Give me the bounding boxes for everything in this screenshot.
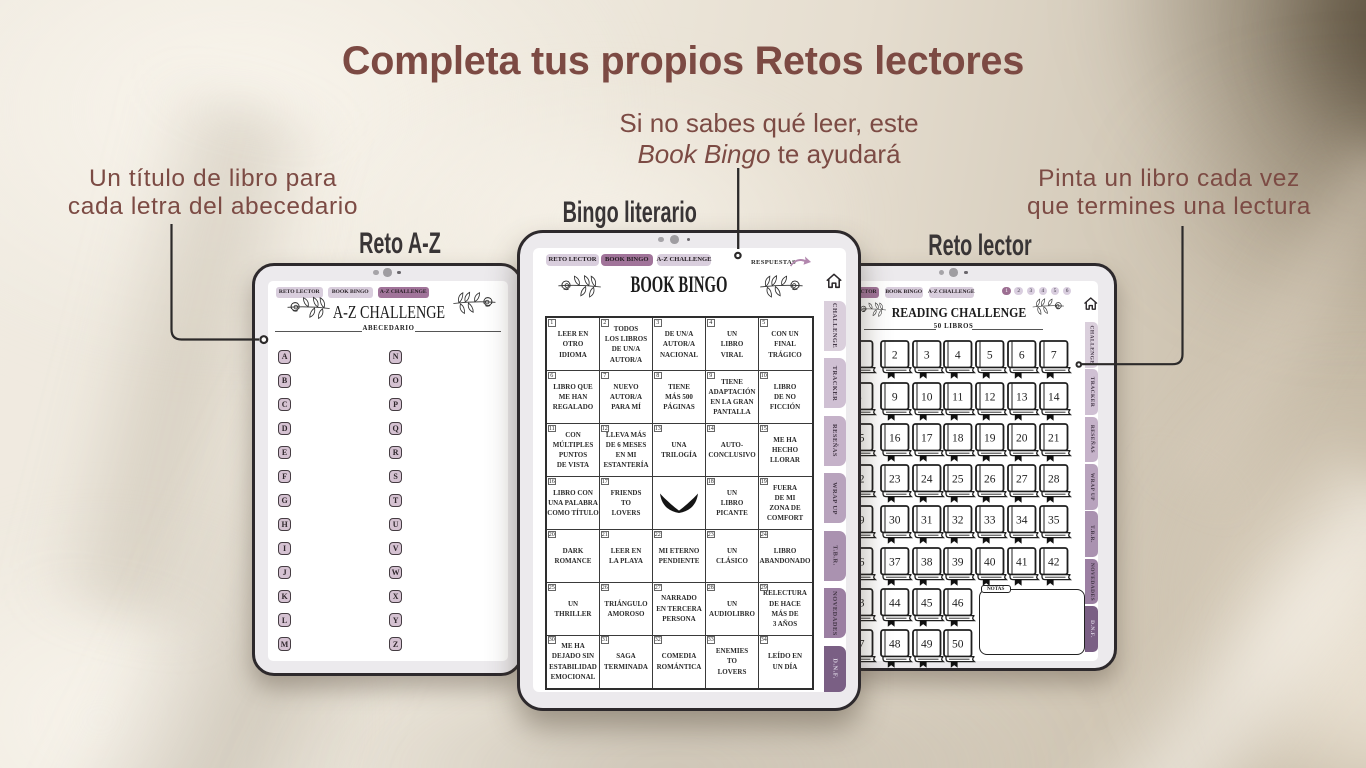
svg-text:33: 33 [984, 515, 996, 527]
svg-text:38: 38 [920, 556, 932, 568]
svg-text:20: 20 [1016, 432, 1028, 444]
svg-text:4: 4 [955, 350, 961, 362]
svg-text:44: 44 [889, 598, 901, 610]
svg-text:42: 42 [1048, 556, 1060, 568]
svg-text:5: 5 [987, 350, 993, 362]
svg-text:17: 17 [920, 432, 932, 444]
svg-text:9: 9 [891, 391, 897, 403]
svg-text:18: 18 [952, 432, 964, 444]
svg-text:10: 10 [920, 391, 932, 403]
svg-text:7: 7 [1051, 350, 1057, 362]
svg-text:28: 28 [1048, 474, 1060, 486]
svg-text:6: 6 [1019, 350, 1025, 362]
svg-text:21: 21 [1048, 432, 1060, 444]
svg-text:50: 50 [952, 639, 964, 651]
svg-text:19: 19 [984, 432, 996, 444]
svg-text:26: 26 [984, 474, 996, 486]
svg-text:30: 30 [889, 515, 901, 527]
svg-text:48: 48 [889, 639, 901, 651]
svg-text:34: 34 [1016, 515, 1028, 527]
svg-text:49: 49 [920, 639, 932, 651]
svg-text:32: 32 [952, 515, 964, 527]
svg-text:39: 39 [952, 556, 964, 568]
svg-text:12: 12 [984, 391, 996, 403]
svg-text:13: 13 [1016, 391, 1028, 403]
svg-text:25: 25 [952, 474, 964, 486]
svg-text:41: 41 [1016, 556, 1028, 568]
svg-text:37: 37 [889, 556, 901, 568]
svg-text:24: 24 [920, 474, 932, 486]
svg-text:31: 31 [920, 515, 932, 527]
svg-text:45: 45 [920, 598, 932, 610]
svg-text:40: 40 [984, 556, 996, 568]
svg-text:2: 2 [891, 350, 897, 362]
svg-text:46: 46 [952, 598, 964, 610]
svg-text:3: 3 [923, 350, 929, 362]
svg-text:11: 11 [952, 391, 963, 403]
svg-text:27: 27 [1016, 474, 1028, 486]
svg-text:14: 14 [1048, 391, 1060, 403]
svg-text:16: 16 [889, 432, 901, 444]
svg-text:35: 35 [1048, 515, 1060, 527]
svg-text:23: 23 [889, 474, 901, 486]
